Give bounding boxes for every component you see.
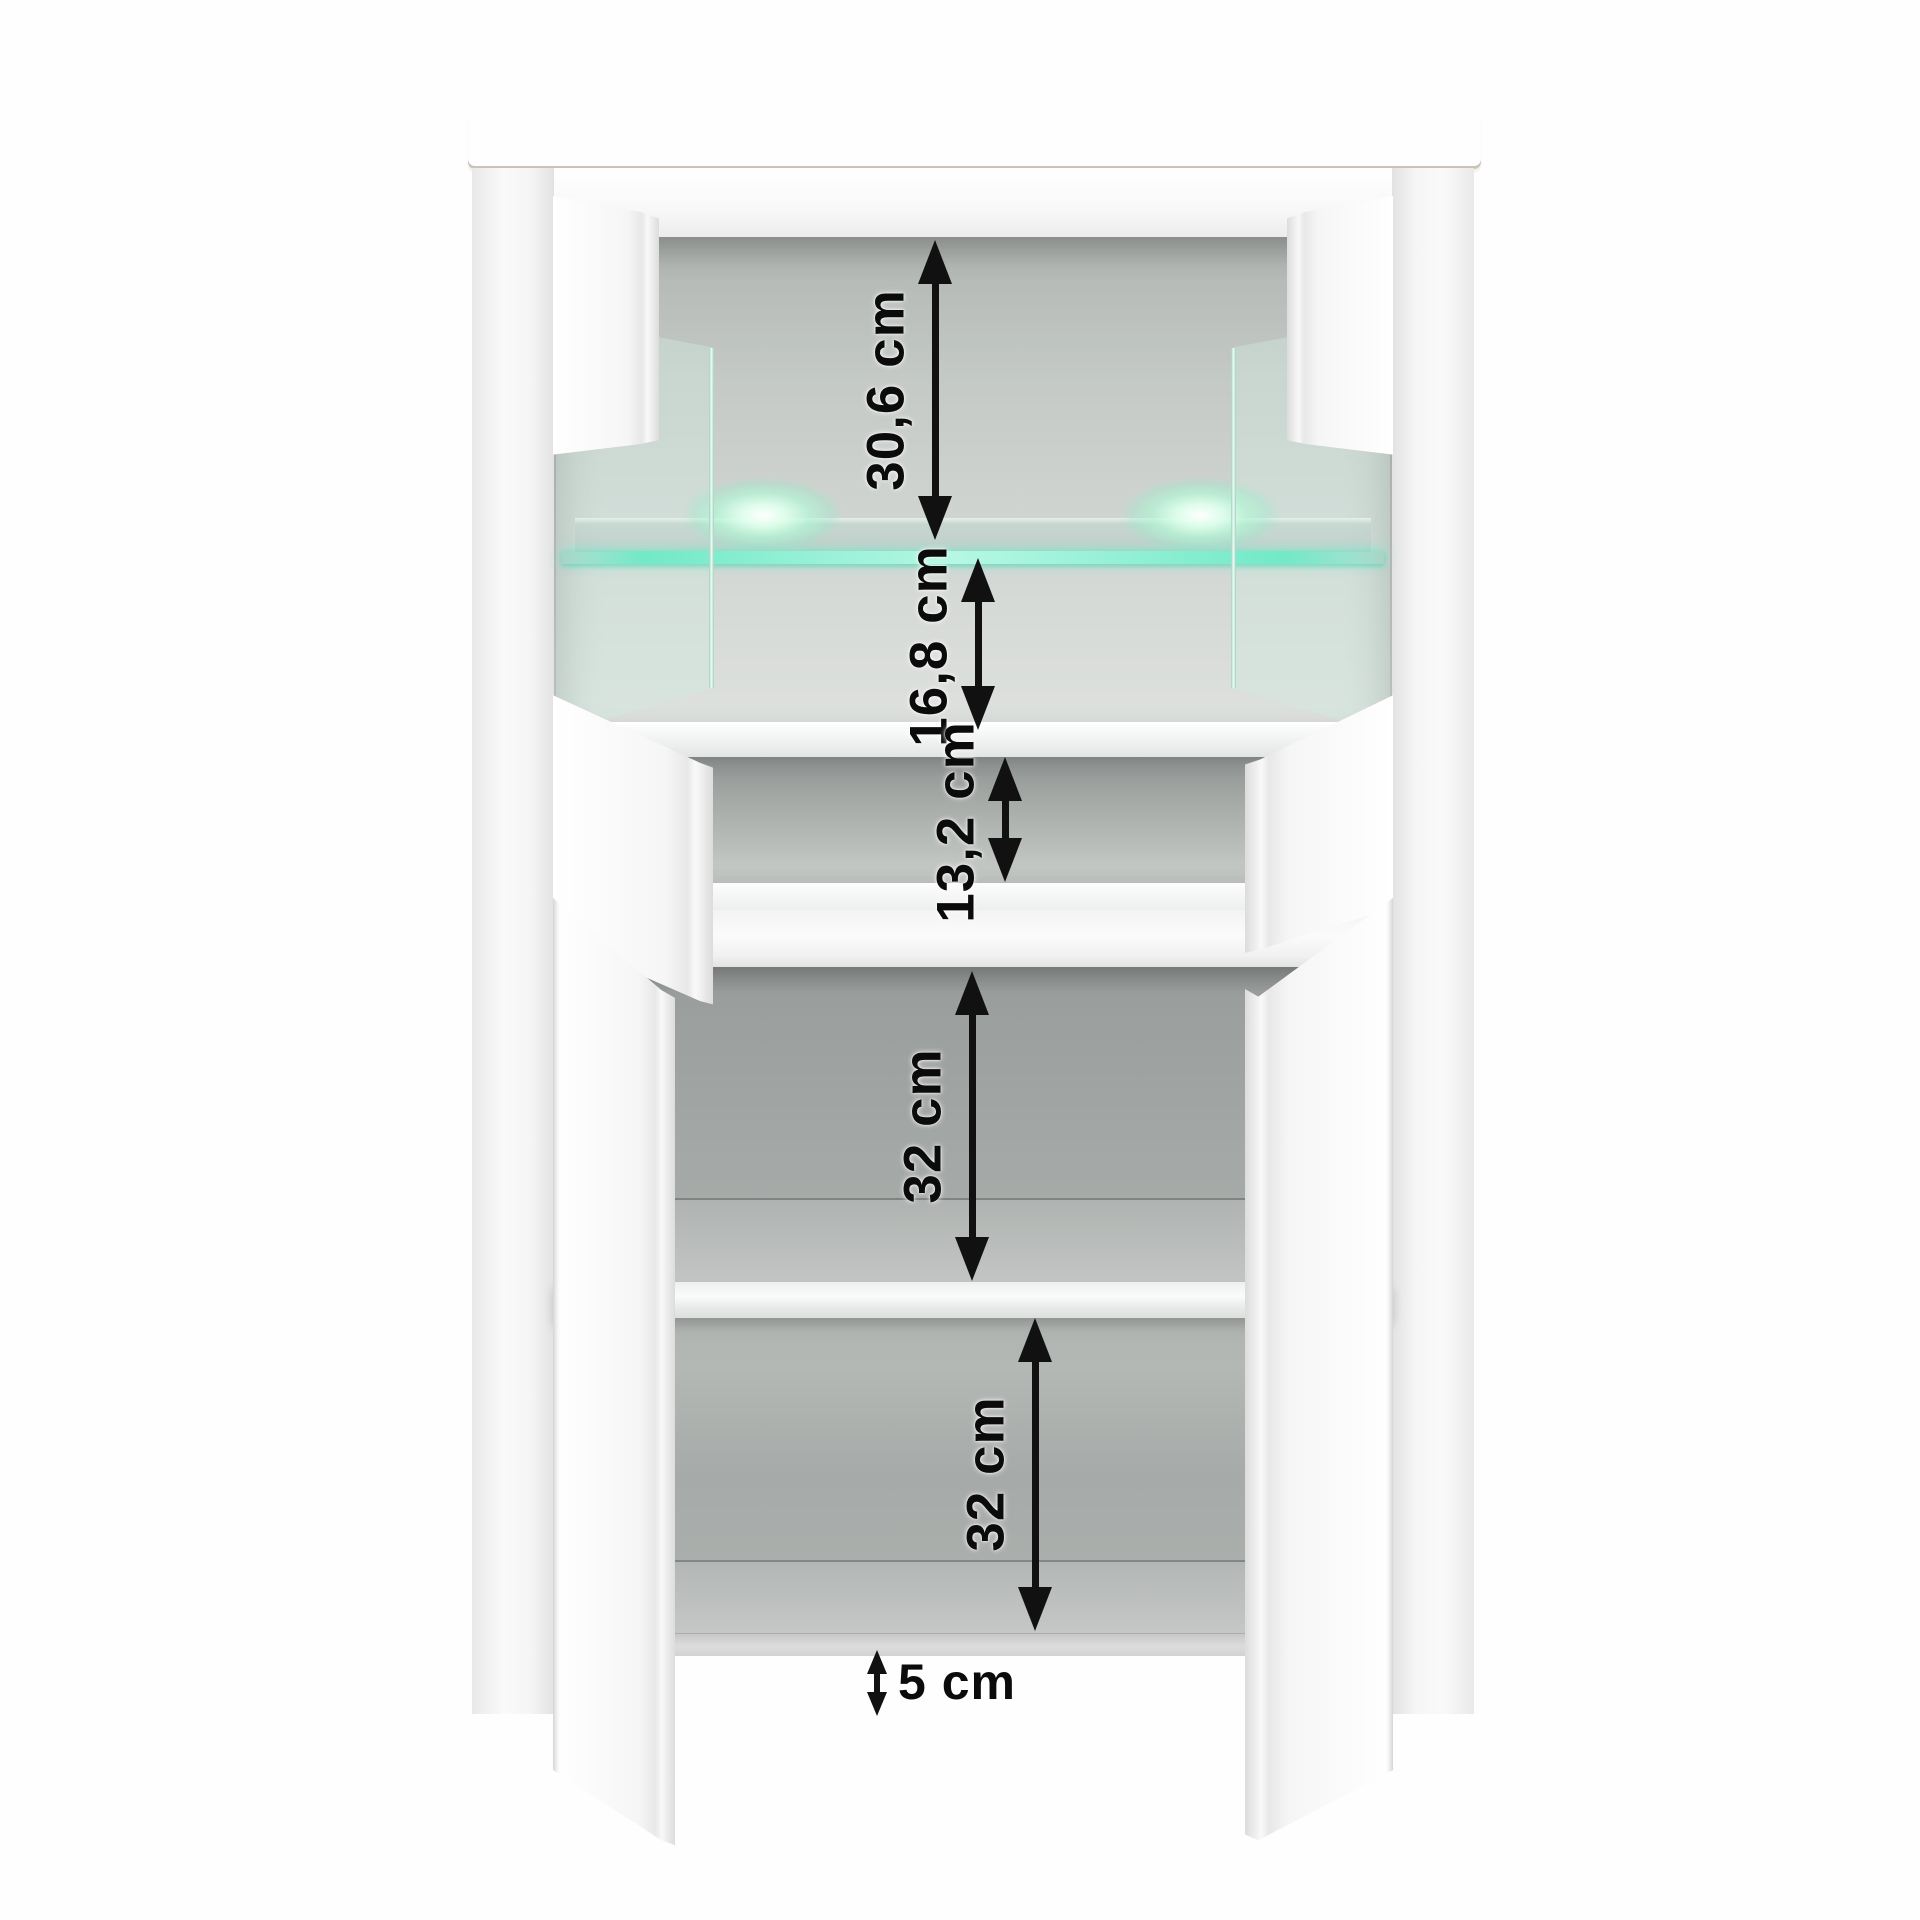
dimension-label-32-bottom: 32 cm: [956, 1396, 1017, 1551]
arrow-shaft: [932, 276, 939, 504]
top-rail: [554, 168, 1392, 239]
dimension-label-16-8: 16,8 cm: [899, 545, 960, 746]
arrow-shaft: [1002, 793, 1009, 846]
wood-top-board: [468, 112, 1481, 169]
dimension-label-30-6: 30,6 cm: [856, 289, 917, 490]
led-light-right: [1095, 466, 1305, 564]
led-light-left: [658, 466, 868, 564]
arrow-shaft: [874, 1668, 880, 1698]
dimension-arrow-5: [867, 1650, 887, 1716]
dimension-arrow-30-6: [918, 240, 952, 540]
vitrine-door-top-right: [1287, 192, 1393, 456]
vitrine-door-top-left: [553, 192, 659, 456]
cabinet-door-right: [1245, 895, 1393, 1845]
product-dimension-image: 30,6 cm 16,8 cm 13,2 cm 32 cm 32 cm 5 cm: [0, 0, 1920, 1920]
dimension-arrow-13-2: [988, 757, 1022, 882]
dimension-arrow-32-bottom: [1018, 1318, 1052, 1631]
cabinet-door-left: [553, 895, 675, 1847]
dimension-label-32-top: 32 cm: [893, 1048, 954, 1203]
glass-front-edge-left: [709, 348, 714, 688]
dimension-label-5: 5 cm: [898, 1653, 1016, 1711]
arrow-shaft: [1032, 1354, 1039, 1595]
glass-front-edge-right: [1231, 348, 1236, 688]
arrow-shaft: [969, 1007, 976, 1245]
right-side-panel: [1391, 168, 1474, 1714]
dimension-label-13-2: 13,2 cm: [926, 721, 987, 922]
dimension-arrow-32-top: [955, 971, 989, 1281]
dimension-arrow-16-8: [961, 558, 995, 730]
arrow-shaft: [975, 594, 982, 694]
left-side-panel: [472, 168, 555, 1714]
